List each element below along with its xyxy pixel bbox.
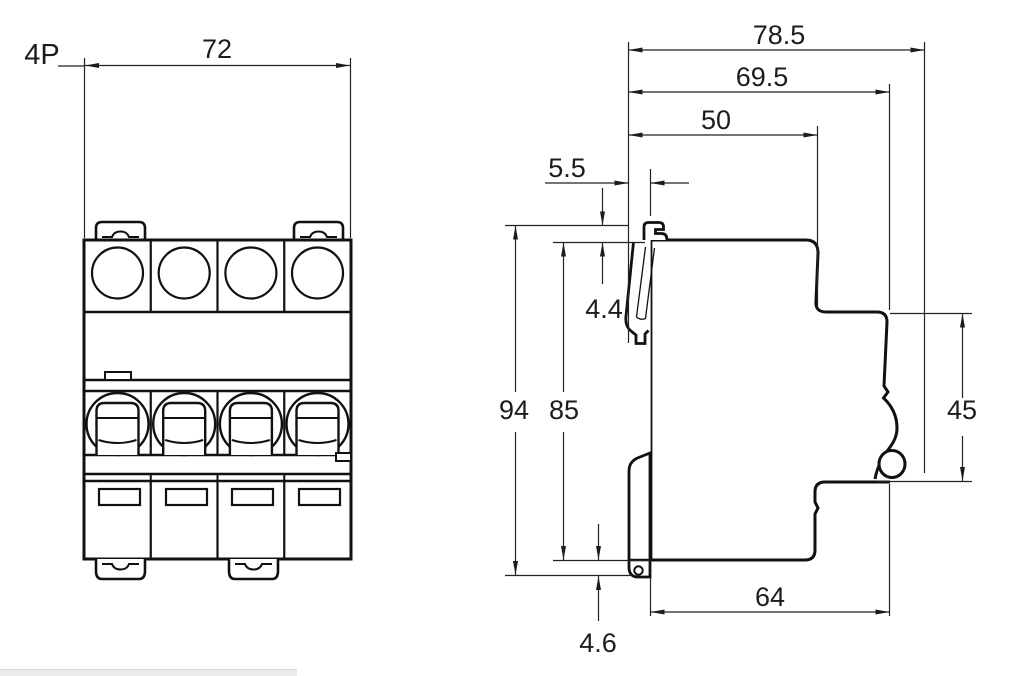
front-pole-label: 4P xyxy=(24,39,59,71)
toggle-handle-3 xyxy=(230,403,272,455)
dim-handle-protrusion-5-5: 5.5 xyxy=(548,153,586,183)
front-view-dimensions xyxy=(58,58,351,238)
toggle-handle-4 xyxy=(297,403,339,455)
front-view xyxy=(84,222,351,579)
side-profile-lower xyxy=(652,482,891,560)
dim-front-height-45: 45 xyxy=(947,395,977,425)
toggle-lever-outline xyxy=(626,242,649,344)
technical-drawing-canvas: 4P 72 78.5 69.5 50 5.5 4.4 94 85 45 64 4… xyxy=(0,0,1020,676)
band-right-tab xyxy=(336,453,351,461)
dim-step-depth-50: 50 xyxy=(701,105,731,135)
toggle-handle-1 xyxy=(97,403,139,455)
dim-base-depth-64: 64 xyxy=(755,582,785,612)
dim-overall-height-94: 94 xyxy=(499,395,529,425)
horizontal-scrollbar-fragment[interactable] xyxy=(0,669,297,676)
toggle-lever-top-tab xyxy=(644,223,667,241)
mcb-dimension-drawing: 4P 72 78.5 69.5 50 5.5 4.4 94 85 45 64 4… xyxy=(0,0,1020,676)
front-extension-lines xyxy=(58,58,351,238)
face-label-window xyxy=(105,372,131,380)
dim-terminal-depth-69-5: 69.5 xyxy=(736,62,789,92)
dim-width-72: 72 xyxy=(202,34,232,64)
side-profile-upper xyxy=(651,240,897,479)
pole-window-2 xyxy=(166,489,207,505)
rear-terminal-circle xyxy=(879,451,905,478)
side-view xyxy=(626,223,905,578)
front-clip xyxy=(629,453,650,577)
toggle-handle-2 xyxy=(163,403,205,455)
side-view-dimensions xyxy=(505,42,972,621)
dim-body-height-85: 85 xyxy=(549,395,579,425)
side-extension-lines xyxy=(505,42,972,616)
dim-handle-drop-4-4: 4.4 xyxy=(585,294,623,324)
pole-window-4 xyxy=(299,489,340,505)
dim-clip-drop-4-6: 4.6 xyxy=(579,628,617,658)
dim-total-depth-78-5: 78.5 xyxy=(753,20,806,50)
pole-window-3 xyxy=(232,489,273,505)
pole-window-1 xyxy=(99,489,140,505)
